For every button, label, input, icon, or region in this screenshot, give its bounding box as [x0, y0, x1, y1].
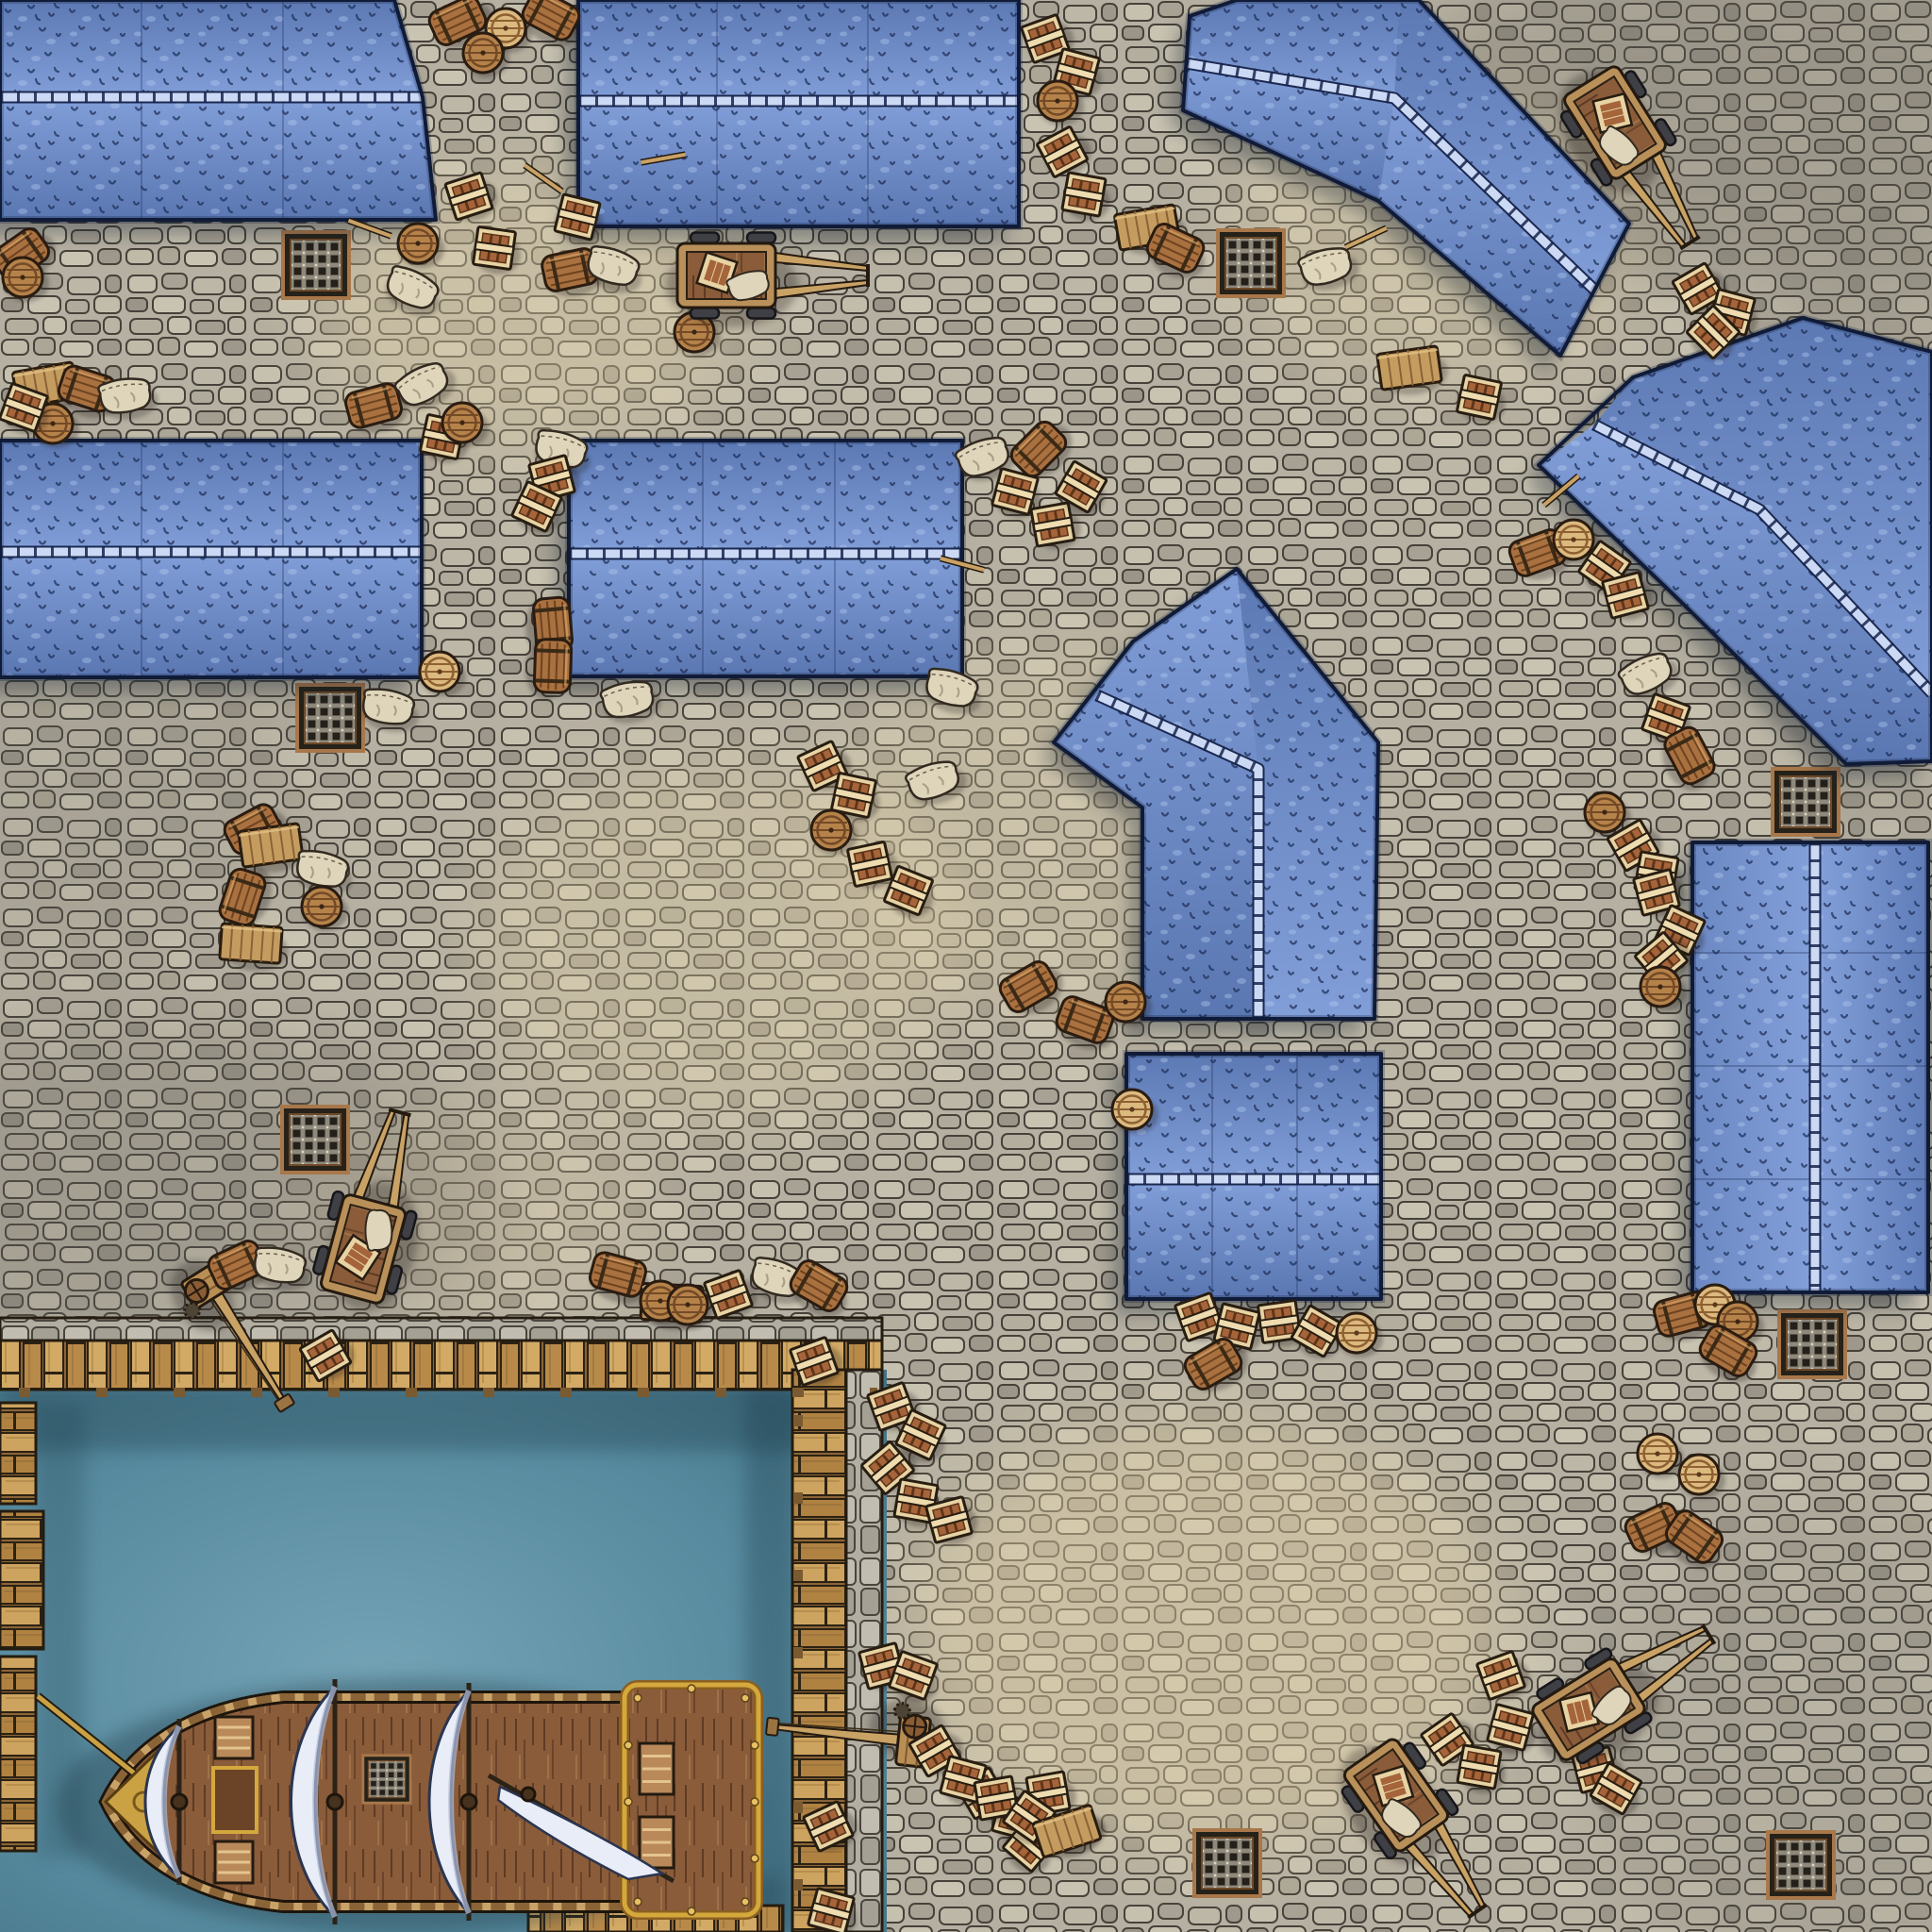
sewer-grate — [1768, 1832, 1834, 1898]
sewer-grate — [282, 1107, 348, 1173]
companionway — [215, 1717, 253, 1758]
companionway — [640, 1817, 674, 1868]
cargo-hatch — [213, 1768, 257, 1832]
harbor-battle-map[interactable] — [0, 0, 1932, 1932]
pier-west-1 — [0, 1403, 36, 1504]
companionway — [640, 1743, 674, 1794]
pier-west-2 — [0, 1511, 43, 1649]
map-canvas[interactable] — [0, 0, 1932, 1932]
sewer-grate — [297, 685, 363, 751]
companionway — [215, 1841, 253, 1883]
stern-deck — [625, 1685, 758, 1915]
building-roof — [1126, 1054, 1381, 1299]
building-roof — [0, 441, 422, 677]
building-roof — [569, 441, 962, 676]
pier-west-3 — [0, 1657, 36, 1851]
sewer-grate — [1218, 230, 1284, 296]
dock-curb-north — [0, 1318, 882, 1342]
sewer-grate — [1773, 769, 1839, 835]
sewer-grate — [1779, 1311, 1845, 1377]
building-roof — [578, 0, 1019, 226]
sewer-grate — [1194, 1830, 1260, 1896]
building-roof — [1692, 842, 1928, 1292]
dock-north — [0, 1341, 882, 1390]
sewer-grate — [283, 232, 349, 298]
building-roof — [0, 0, 436, 220]
ship-grate — [363, 1756, 410, 1803]
